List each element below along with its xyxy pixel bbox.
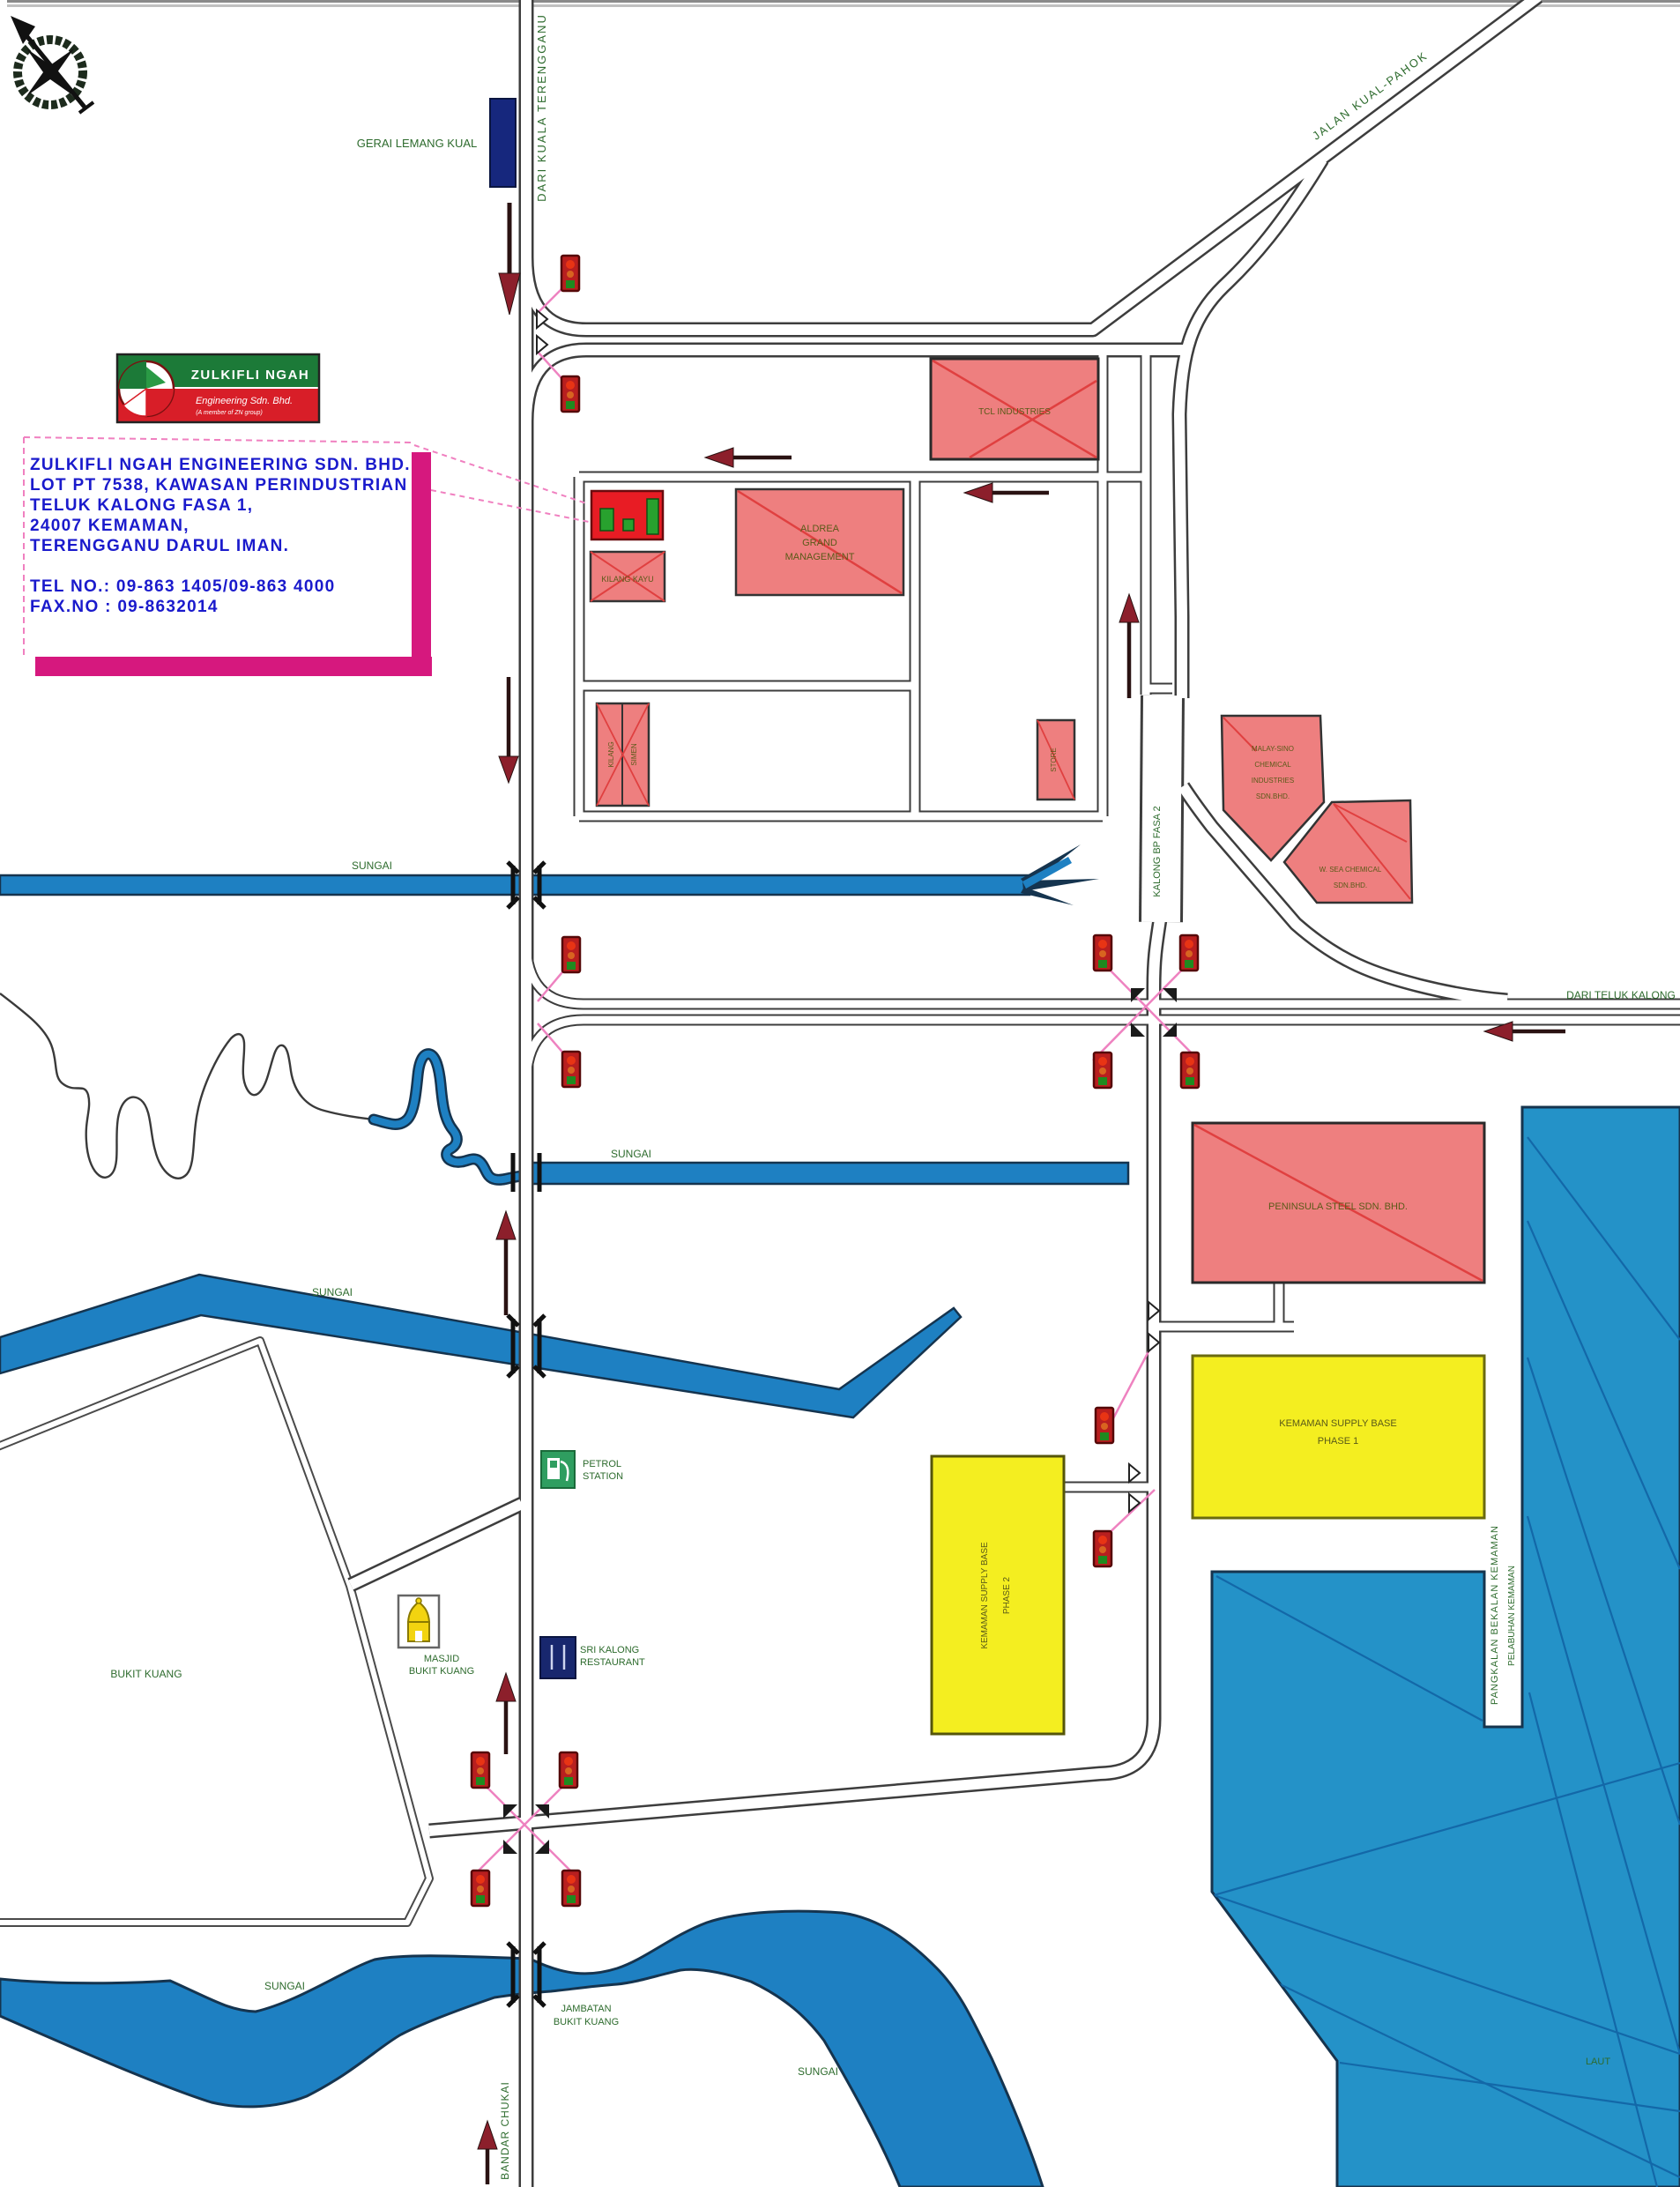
svg-text:Engineering Sdn. Bhd.: Engineering Sdn. Bhd. xyxy=(196,396,293,406)
svg-text:MALAY-SINO: MALAY-SINO xyxy=(1252,745,1294,753)
svg-text:SIMEN: SIMEN xyxy=(630,743,638,766)
svg-text:TELUK KALONG FASA 1,: TELUK KALONG FASA 1, xyxy=(30,496,253,515)
svg-text:TERENGGANU DARUL IMAN.: TERENGGANU DARUL IMAN. xyxy=(30,537,289,555)
svg-text:KEMAMAN SUPPLY BASE: KEMAMAN SUPPLY BASE xyxy=(1279,1418,1396,1429)
svg-text:PANGKALAN BEKALAN KEMAMAN: PANGKALAN BEKALAN KEMAMAN xyxy=(1490,1525,1500,1705)
svg-text:BANDAR CHUKAI: BANDAR CHUKAI xyxy=(499,2081,511,2180)
svg-text:SUNGAI: SUNGAI xyxy=(611,1148,651,1160)
svg-text:MASJID: MASJID xyxy=(424,1654,459,1664)
svg-text:BUKIT KUANG: BUKIT KUANG xyxy=(110,1668,182,1680)
svg-text:SDN.BHD.: SDN.BHD. xyxy=(1256,792,1290,800)
svg-text:24007 KEMAMAN,: 24007 KEMAMAN, xyxy=(30,517,190,535)
svg-text:GERAI LEMANG KUAL: GERAI LEMANG KUAL xyxy=(357,137,478,150)
svg-text:PENINSULA STEEL SDN. BHD.: PENINSULA STEEL SDN. BHD. xyxy=(1268,1201,1408,1212)
svg-text:CHEMICAL: CHEMICAL xyxy=(1254,761,1291,769)
svg-text:TEL NO.: 09-863 1405/09-863 40: TEL NO.: 09-863 1405/09-863 4000 xyxy=(30,577,336,596)
svg-text:BUKIT KUANG: BUKIT KUANG xyxy=(554,2017,619,2027)
svg-text:FAX.NO : 09-8632014: FAX.NO : 09-8632014 xyxy=(30,598,219,616)
svg-text:PELABUHAN KEMAMAN: PELABUHAN KEMAMAN xyxy=(1507,1566,1517,1666)
svg-text:KALONG BP FASA 2: KALONG BP FASA 2 xyxy=(1152,806,1163,896)
svg-text:JAMBATAN: JAMBATAN xyxy=(561,2004,611,2014)
svg-text:STATION: STATION xyxy=(583,1471,623,1482)
svg-text:KILANG: KILANG xyxy=(607,741,615,767)
svg-text:LOT PT 7538, KAWASAN PERINDUST: LOT PT 7538, KAWASAN PERINDUSTRIAN xyxy=(30,476,407,495)
svg-text:PHASE 2: PHASE 2 xyxy=(1002,1576,1012,1614)
svg-text:SUNGAI: SUNGAI xyxy=(352,859,392,872)
svg-text:ZULKIFLI NGAH ENGINEERING SDN.: ZULKIFLI NGAH ENGINEERING SDN. BHD. xyxy=(30,456,411,474)
svg-text:SUNGAI: SUNGAI xyxy=(798,2065,838,2078)
svg-text:LAUT: LAUT xyxy=(1586,2057,1610,2067)
svg-text:SUNGAI: SUNGAI xyxy=(264,1980,305,1992)
svg-text:DARI KUALA TERENGGANU: DARI KUALA TERENGGANU xyxy=(535,13,548,202)
svg-text:ALDREA: ALDREA xyxy=(800,524,840,534)
svg-text:DARI TELUK KALONG: DARI TELUK KALONG xyxy=(1566,989,1676,1001)
svg-text:SRI KALONG: SRI KALONG xyxy=(580,1645,639,1655)
svg-text:MANAGEMENT: MANAGEMENT xyxy=(785,552,855,562)
svg-text:GRAND: GRAND xyxy=(802,538,837,548)
svg-text:RESTAURANT: RESTAURANT xyxy=(580,1657,645,1668)
svg-text:KEMAMAN SUPPLY BASE: KEMAMAN SUPPLY BASE xyxy=(980,1542,990,1649)
svg-text:SDN.BHD.: SDN.BHD. xyxy=(1334,881,1367,889)
svg-text:ZULKIFLI NGAH: ZULKIFLI NGAH xyxy=(191,368,309,383)
svg-text:KILANG KAYU: KILANG KAYU xyxy=(601,575,653,584)
svg-text:STORE: STORE xyxy=(1050,748,1058,771)
svg-text:INDUSTRIES: INDUSTRIES xyxy=(1252,777,1294,785)
svg-text:(A member of ZN group): (A member of ZN group) xyxy=(196,410,263,416)
svg-text:TCL INDUSTRIES: TCL INDUSTRIES xyxy=(978,407,1051,417)
svg-text:PHASE 1: PHASE 1 xyxy=(1318,1436,1358,1447)
svg-text:SUNGAI: SUNGAI xyxy=(312,1286,353,1298)
svg-text:PETROL: PETROL xyxy=(583,1459,621,1469)
svg-text:BUKIT KUANG: BUKIT KUANG xyxy=(409,1666,474,1677)
svg-text:W. SEA CHEMICAL: W. SEA CHEMICAL xyxy=(1319,866,1382,874)
